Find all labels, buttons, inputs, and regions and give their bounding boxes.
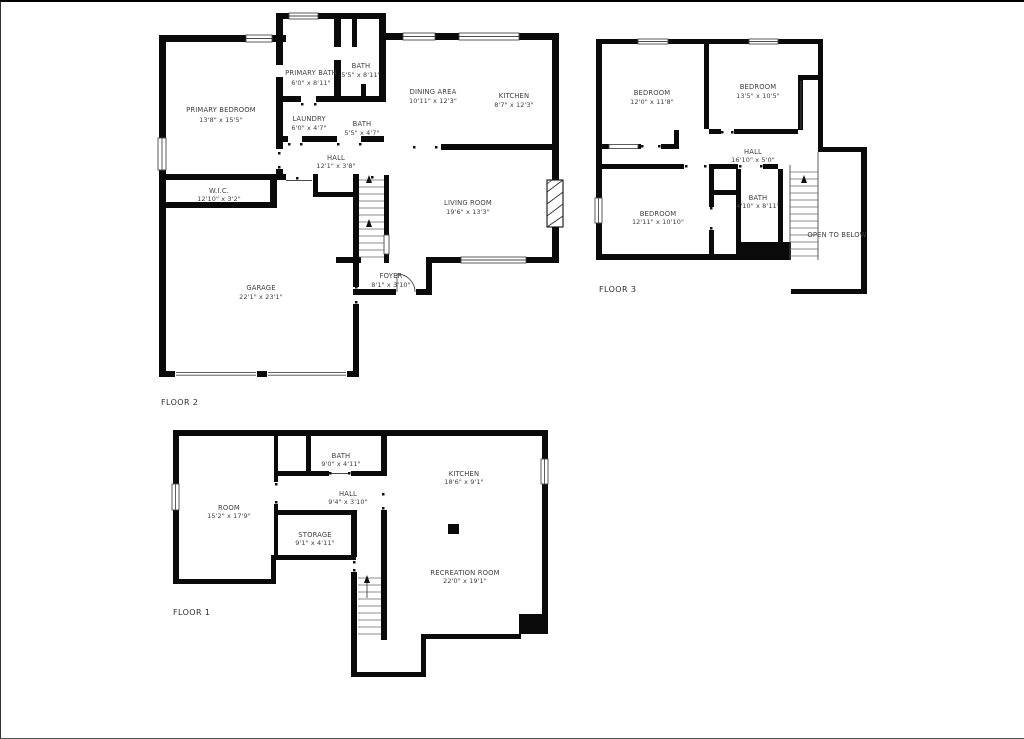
room-label: BEDROOM (740, 83, 777, 91)
room-dims: 16'10" x 5'0" (731, 156, 775, 164)
room-label: ROOM (218, 504, 240, 512)
open-to-below-label: OPEN TO BELOW (807, 231, 866, 239)
room-dims: 13'5" x 10'5" (736, 92, 780, 100)
room-label: FOYER (380, 272, 403, 280)
room-dims: 12'0" x 11'8" (630, 98, 674, 106)
room-label: PRIMARY BEDROOM (186, 106, 256, 114)
stair-railing (384, 235, 389, 254)
stair-treads (358, 578, 381, 634)
room-dims: 12'10" x 3'2" (197, 195, 241, 203)
room-label: BEDROOM (640, 210, 677, 218)
stairs-floor-3 (790, 152, 818, 260)
room-label: HALL (744, 148, 762, 156)
room-label: LIVING ROOM (444, 199, 492, 207)
room-label: HALL (339, 490, 357, 498)
room-label: W.I.C. (209, 187, 229, 195)
room-label: KITCHEN (499, 92, 530, 100)
room-dims: 22'0" x 19'1" (443, 577, 487, 585)
room-dims: 13'8" x 15'5" (199, 116, 243, 124)
room-label: BATH (352, 62, 371, 70)
room-label: BATH (749, 194, 768, 202)
room-dims: 9'1" x 4'11" (295, 539, 334, 547)
garage-doors (176, 181, 346, 376)
room-label: LAUNDRY (292, 115, 326, 123)
floor-3-walls (596, 39, 867, 294)
stairs-floor-1 (358, 575, 381, 634)
room-dims: 15'2" x 17'9" (207, 512, 251, 520)
stair-treads (359, 180, 384, 257)
fireplace (547, 180, 563, 227)
stair-treads (790, 172, 818, 256)
floor-2-plan: PRIMARY BEDROOM 13'8" x 15'5" PRIMARY BA… (158, 13, 563, 407)
floor-1-plan: BATH 9'0" x 4'11" KITCHEN 18'6" x 9'1" R… (172, 430, 548, 677)
room-dims: 5'5" x 4'7" (344, 129, 379, 137)
fireplace-box (547, 180, 563, 227)
room-dims: 10'11" x 12'3" (409, 97, 457, 105)
room-dims: 12'1" x 3'8" (316, 162, 355, 170)
floor-3-plan: BEDROOM 12'0" x 11'8" BEDROOM 13'5" x 10… (595, 39, 867, 294)
closet-door (609, 145, 638, 149)
room-label: DINING AREA (410, 88, 457, 96)
room-label: BATH (332, 452, 351, 460)
room-label: BATH (353, 120, 372, 128)
floor-2-windows (158, 13, 526, 263)
room-dims: 6'0" x 4'7" (291, 124, 326, 132)
floorplan-drawing: PRIMARY BEDROOM 13'8" x 15'5" PRIMARY BA… (1, 2, 1024, 739)
room-dims: 9'4" x 3'10" (328, 498, 367, 506)
room-dims: 12'11" x 10'10" (632, 218, 684, 226)
room-dims: 22'1" x 23'1" (239, 293, 283, 301)
stairs-floor-2 (359, 175, 384, 257)
stair-arrow (364, 575, 370, 583)
room-label: HALL (327, 154, 345, 162)
room-dims: 18'6" x 9'1" (444, 478, 483, 486)
floor-label: FLOOR 2 (161, 398, 198, 407)
room-label: GARAGE (246, 284, 275, 292)
room-label: STORAGE (298, 531, 331, 539)
room-dims: 4'10" x 8'11" (736, 202, 780, 210)
room-dims: 8'1" x 3'10" (371, 281, 410, 289)
room-label: KITCHEN (449, 470, 480, 478)
room-label: BEDROOM (634, 89, 671, 97)
room-dims: 6'0" x 8'11" (291, 79, 330, 87)
room-dims: 8'7" x 12'3" (494, 101, 533, 109)
floor-label: FLOOR 1 (173, 608, 210, 617)
room-dims: 9'0" x 4'11" (321, 460, 360, 468)
room-dims: 19'6" x 13'3" (446, 208, 490, 216)
floor-label: FLOOR 3 (599, 285, 636, 294)
floorplan-sheet: PRIMARY BEDROOM 13'8" x 15'5" PRIMARY BA… (0, 0, 1024, 739)
room-label: PRIMARY BATH (285, 69, 337, 77)
room-dims: 5'5" x 8'11" (341, 71, 380, 79)
room-label: RECREATION ROOM (430, 569, 499, 577)
